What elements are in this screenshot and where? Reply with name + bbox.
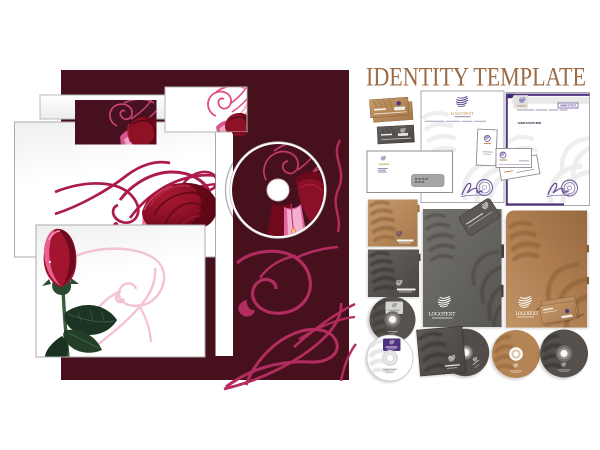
svg-text:logotext: logotext [517,105,527,108]
svg-text:LOGOTEXT: LOGOTEXT [451,111,475,116]
svg-text:SAMPLE TEXT HERE: SAMPLE TEXT HERE [518,121,542,125]
svg-text:logotext: logotext [379,162,390,166]
svg-text:LOGOTEXT: LOGOTEXT [429,312,457,318]
svg-text:IDENTITY TEMPLATE: IDENTITY TEMPLATE [366,62,586,92]
svg-text:SAMPLE TEXT: SAMPLE TEXT [560,104,576,108]
svg-text:LOGOTEXT: LOGOTEXT [516,312,539,317]
